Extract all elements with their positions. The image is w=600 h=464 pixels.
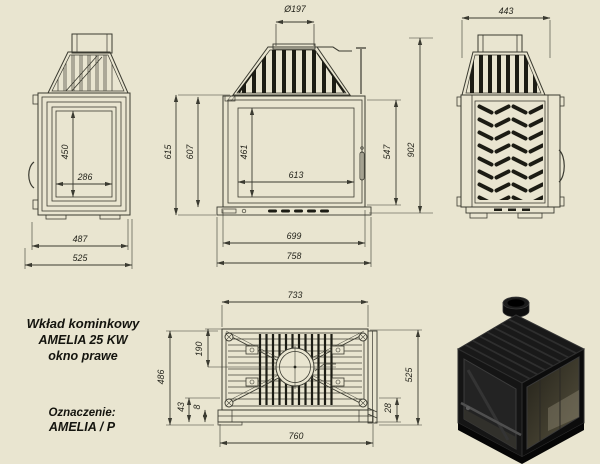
deflector-ribs xyxy=(58,53,112,93)
hood-ribs xyxy=(238,48,345,94)
dim-label-glass-height: 450 xyxy=(60,145,70,160)
hood-ribs-right xyxy=(470,52,537,95)
dim-label-depth-total: 525 xyxy=(404,368,414,383)
left-side-view: 450 286 487 525 xyxy=(25,34,132,269)
damper-rod xyxy=(317,47,352,51)
dim-label-body-width-front: 699 xyxy=(287,231,302,241)
flue-stub-outline xyxy=(72,34,112,53)
right-side-view: 443 xyxy=(457,6,564,218)
dim-label-height-outer: 615 xyxy=(163,145,173,160)
dim-label-body-width: 487 xyxy=(73,234,89,244)
dim-label-glass-width: 286 xyxy=(77,172,93,182)
dim-label-total-width: 525 xyxy=(73,253,88,263)
dim-label-glass-height-front: 461 xyxy=(239,145,249,160)
designation-value: AMELIA / P xyxy=(34,421,130,435)
designation-label: Oznaczenie: xyxy=(34,407,130,420)
dim-label-front-gap-c: 28 xyxy=(383,403,393,414)
dim-label-flue-diameter: Ø197 xyxy=(283,4,307,14)
flue-stub-right xyxy=(478,35,522,52)
technical-drawing-sheet: 450 286 487 525 xyxy=(0,0,600,464)
top-view: 733 190 486 43 8 28 525 760 xyxy=(156,290,422,447)
dim-label-total-height: 902 xyxy=(406,143,416,158)
product-variant: okno prawe xyxy=(26,350,140,364)
dim-label-inner-width: 733 xyxy=(288,290,303,300)
dim-label-total-width-front: 758 xyxy=(287,251,302,261)
dim-label-flue-offset: 190 xyxy=(194,342,204,357)
dim-label-door-height: 547 xyxy=(382,144,392,160)
dim-label-depth-body: 486 xyxy=(156,370,166,385)
dim-label-depth: 443 xyxy=(499,6,514,16)
dim-label-total-width-top: 760 xyxy=(289,431,304,441)
dim-label-height-body: 607 xyxy=(185,144,195,160)
front-view: Ø197 615 607 461 613 547 902 699 758 xyxy=(163,4,433,267)
drawing-canvas: 450 286 487 525 xyxy=(0,0,600,464)
dim-label-front-gap-a: 43 xyxy=(176,402,186,412)
product-model: AMELIA 25 KW xyxy=(26,334,140,348)
product-render-3d xyxy=(458,297,584,464)
front-glass xyxy=(238,108,354,197)
product-title: Wkład kominkowy xyxy=(26,317,140,331)
door-handle xyxy=(29,162,34,188)
heat-exchanger-fins xyxy=(477,103,543,200)
air-vent-slots xyxy=(268,210,329,213)
dim-label-front-gap-b: 8 xyxy=(192,404,202,409)
dim-label-glass-width-front: 613 xyxy=(289,170,304,180)
